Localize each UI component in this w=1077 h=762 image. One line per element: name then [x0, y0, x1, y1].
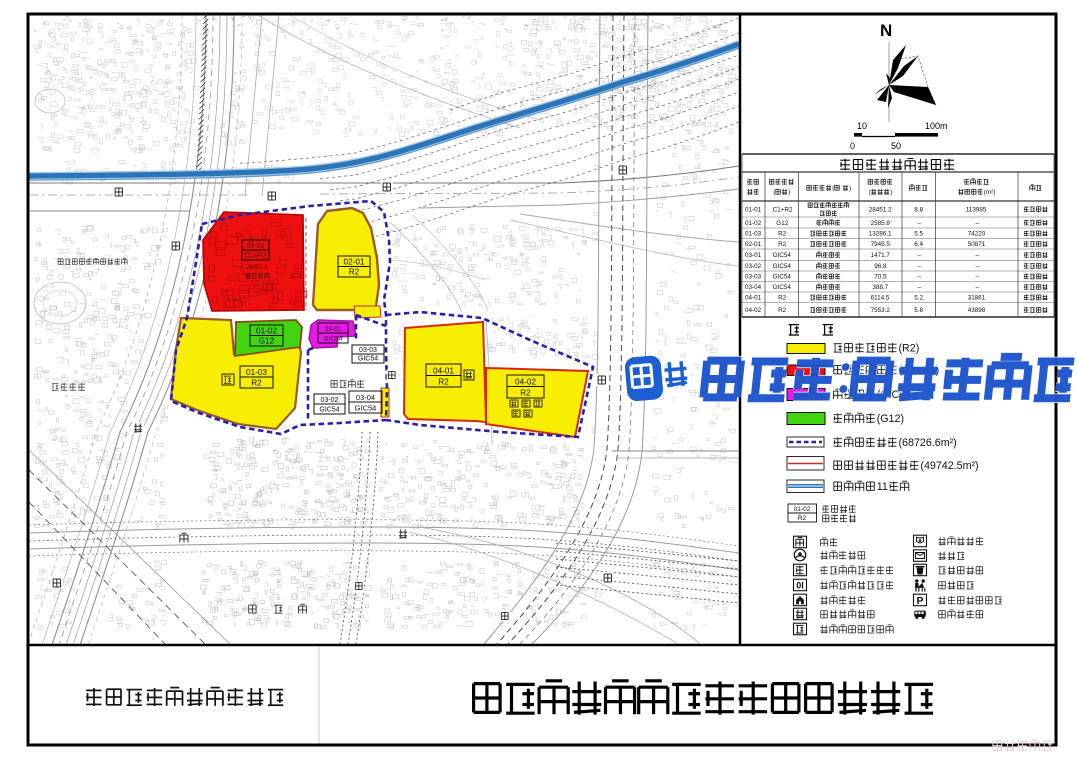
svg-text:(G12): (G12) — [877, 413, 904, 425]
svg-text:31861: 31861 — [968, 295, 986, 302]
svg-text:–: – — [976, 252, 980, 259]
svg-text:): ) — [849, 185, 851, 192]
svg-text:74220: 74220 — [968, 231, 986, 238]
svg-text:–: – — [918, 252, 922, 259]
svg-text:0l: 0l — [796, 580, 804, 590]
svg-text:96.8: 96.8 — [874, 263, 887, 270]
svg-text:R2: R2 — [520, 389, 531, 398]
svg-text:(R2): (R2) — [899, 343, 920, 355]
svg-text:03-02: 03-02 — [745, 263, 762, 270]
svg-text:–: – — [976, 284, 980, 291]
svg-text:): ) — [890, 189, 892, 196]
svg-text:GIC54: GIC54 — [358, 356, 378, 363]
svg-text:50871: 50871 — [968, 241, 986, 248]
svg-text:–: – — [918, 274, 922, 281]
svg-text:01-01: 01-01 — [745, 206, 762, 213]
svg-text:R2: R2 — [438, 378, 449, 387]
svg-text:5.5: 5.5 — [914, 231, 923, 238]
svg-text:5.2: 5.2 — [914, 295, 923, 302]
svg-text:01-03: 01-03 — [246, 368, 267, 377]
svg-text:GIC54: GIC54 — [324, 336, 343, 343]
svg-text:GIC54: GIC54 — [773, 252, 792, 259]
svg-text:01-02: 01-02 — [256, 327, 277, 336]
svg-text:43898: 43898 — [968, 307, 986, 314]
svg-text:R2: R2 — [798, 515, 807, 522]
svg-text:50: 50 — [891, 141, 901, 151]
svg-text:03-04: 03-04 — [356, 393, 375, 402]
svg-text:GIC54: GIC54 — [355, 404, 377, 413]
svg-text:R2: R2 — [349, 268, 360, 277]
svg-text:2585.8: 2585.8 — [871, 220, 891, 227]
svg-text:01-01: 01-01 — [247, 243, 265, 250]
svg-text:(m²): (m²) — [984, 189, 996, 196]
svg-text:10: 10 — [857, 121, 867, 131]
svg-text:–: – — [976, 220, 980, 227]
svg-text:03-04: 03-04 — [745, 284, 762, 291]
svg-text:–: – — [918, 263, 922, 270]
svg-text:(68726.6m²): (68726.6m²) — [899, 437, 957, 449]
svg-text:6114.5: 6114.5 — [871, 295, 890, 302]
svg-text:01-02: 01-02 — [745, 220, 762, 227]
svg-text:04-01: 04-01 — [433, 367, 454, 376]
svg-text:8.8: 8.8 — [914, 206, 923, 213]
svg-text:13286.1: 13286.1 — [869, 231, 892, 238]
svg-text:GIC54: GIC54 — [773, 274, 792, 281]
svg-text:G12: G12 — [776, 220, 788, 227]
svg-text:–: – — [918, 284, 922, 291]
svg-text:70.5: 70.5 — [874, 274, 887, 281]
svg-text:01-02: 01-02 — [794, 506, 811, 513]
svg-text:R2: R2 — [778, 295, 787, 302]
svg-text:388.7: 388.7 — [872, 284, 888, 291]
svg-text:(49742.5m²): (49742.5m²) — [920, 460, 978, 472]
svg-text:1471.7: 1471.7 — [871, 252, 891, 259]
svg-text:01-03: 01-03 — [745, 231, 762, 238]
svg-text:R2: R2 — [778, 241, 787, 248]
svg-text:04-02: 04-02 — [745, 307, 762, 314]
svg-text:03-01: 03-01 — [745, 252, 762, 259]
svg-text:04-01: 04-01 — [745, 295, 762, 302]
svg-text:28451.2: 28451.2 — [869, 206, 892, 213]
svg-text:04-02: 04-02 — [515, 378, 536, 387]
svg-text:N: N — [880, 21, 892, 40]
svg-text:GIC54: GIC54 — [319, 407, 339, 414]
svg-text:03-02: 03-02 — [321, 397, 339, 404]
svg-text:GIC54: GIC54 — [773, 263, 792, 270]
svg-text:113985: 113985 — [966, 206, 987, 213]
svg-text:R2: R2 — [778, 231, 787, 238]
svg-text:02-01: 02-01 — [745, 241, 762, 248]
svg-text:G12: G12 — [259, 337, 275, 346]
svg-text:03-03: 03-03 — [745, 274, 762, 281]
svg-text:R2: R2 — [778, 307, 787, 314]
svg-text:11: 11 — [877, 481, 888, 493]
svg-text:–: – — [976, 274, 980, 281]
svg-text:–: – — [918, 220, 922, 227]
svg-text:): ) — [788, 189, 790, 196]
svg-text:02-01: 02-01 — [344, 258, 365, 267]
svg-text:03-01: 03-01 — [325, 326, 342, 333]
svg-text:C1+R2: C1+R2 — [773, 206, 793, 213]
svg-text:03-03: 03-03 — [359, 347, 377, 354]
svg-text:28451.2: 28451.2 — [246, 265, 268, 271]
svg-text:7553.2: 7553.2 — [871, 307, 891, 314]
svg-text:5.8: 5.8 — [914, 307, 923, 314]
svg-text:6.4: 6.4 — [914, 241, 923, 248]
svg-text:P: P — [916, 595, 923, 607]
svg-text:7945.5: 7945.5 — [871, 241, 891, 248]
svg-text:R2: R2 — [251, 379, 262, 388]
svg-text:100m: 100m — [925, 121, 948, 131]
svg-text:–: – — [976, 263, 980, 270]
svg-text:C1+R2: C1+R2 — [245, 253, 267, 260]
svg-text:0: 0 — [850, 141, 855, 151]
svg-text:GIC54: GIC54 — [773, 284, 792, 291]
